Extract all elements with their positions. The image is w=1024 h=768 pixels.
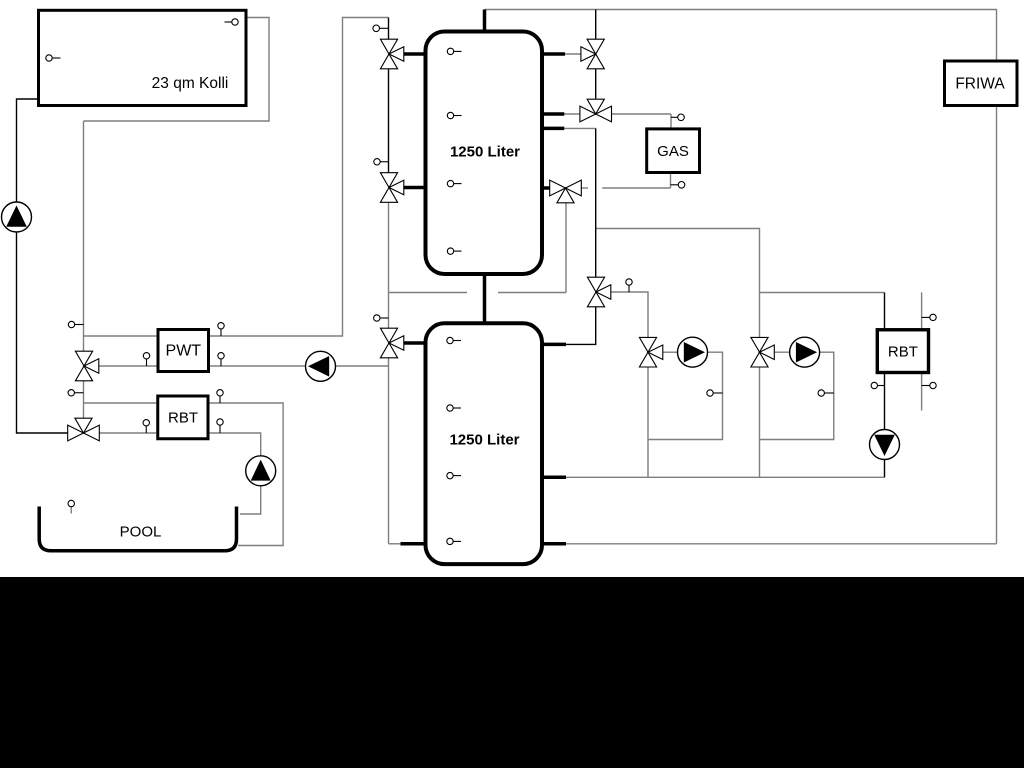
svg-text:1250 Liter: 1250 Liter bbox=[449, 431, 519, 448]
svg-text:FRIWA: FRIWA bbox=[955, 75, 1005, 92]
svg-text:23 qm Kolli: 23 qm Kolli bbox=[152, 75, 229, 92]
svg-text:GAS: GAS bbox=[657, 143, 689, 160]
svg-text:PWT: PWT bbox=[166, 343, 202, 360]
svg-text:RBT: RBT bbox=[888, 343, 918, 360]
svg-text:RBT: RBT bbox=[168, 410, 198, 427]
svg-text:POOL: POOL bbox=[120, 524, 162, 541]
svg-text:1250 Liter: 1250 Liter bbox=[450, 143, 520, 160]
